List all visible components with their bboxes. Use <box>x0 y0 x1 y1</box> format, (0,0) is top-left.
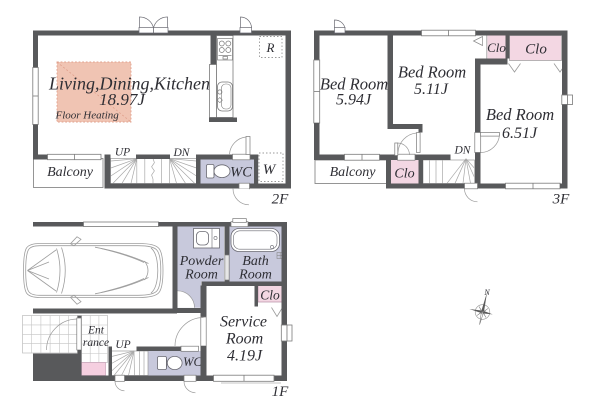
svg-text:UP: UP <box>115 147 130 159</box>
svg-text:Balcony: Balcony <box>47 165 94 180</box>
svg-text:Service: Service <box>220 314 267 331</box>
svg-text:Room: Room <box>238 268 272 283</box>
svg-text:Ent: Ent <box>87 325 105 337</box>
svg-text:Bed Room: Bed Room <box>398 63 466 82</box>
svg-text:Room: Room <box>225 331 263 348</box>
svg-text:N: N <box>483 288 490 297</box>
svg-text:rance: rance <box>83 337 109 349</box>
svg-text:3F: 3F <box>552 192 571 208</box>
svg-text:W: W <box>263 162 277 178</box>
svg-text:1F: 1F <box>272 384 290 400</box>
svg-text:UP: UP <box>115 339 130 351</box>
svg-text:WC: WC <box>230 165 252 181</box>
svg-text:2F: 2F <box>272 192 290 208</box>
svg-text:5.11J: 5.11J <box>414 81 449 98</box>
svg-text:DN: DN <box>173 147 191 159</box>
svg-text:R: R <box>266 40 275 55</box>
svg-text:Clo: Clo <box>394 167 414 182</box>
svg-text:5.94J: 5.94J <box>336 92 372 109</box>
svg-text:WC: WC <box>183 355 202 369</box>
svg-text:Clo: Clo <box>260 288 280 303</box>
svg-text:6.51J: 6.51J <box>502 125 538 142</box>
svg-text:Room: Room <box>184 268 218 283</box>
svg-text:18.97J: 18.97J <box>99 90 146 109</box>
svg-text:Clo: Clo <box>525 42 547 58</box>
svg-text:Floor Heating: Floor Heating <box>55 110 120 122</box>
svg-text:DN: DN <box>454 145 472 157</box>
svg-text:Bed Room: Bed Room <box>486 105 554 124</box>
svg-text:4.19J: 4.19J <box>227 348 263 365</box>
svg-text:Balcony: Balcony <box>330 165 377 180</box>
svg-text:Clo: Clo <box>487 40 506 55</box>
